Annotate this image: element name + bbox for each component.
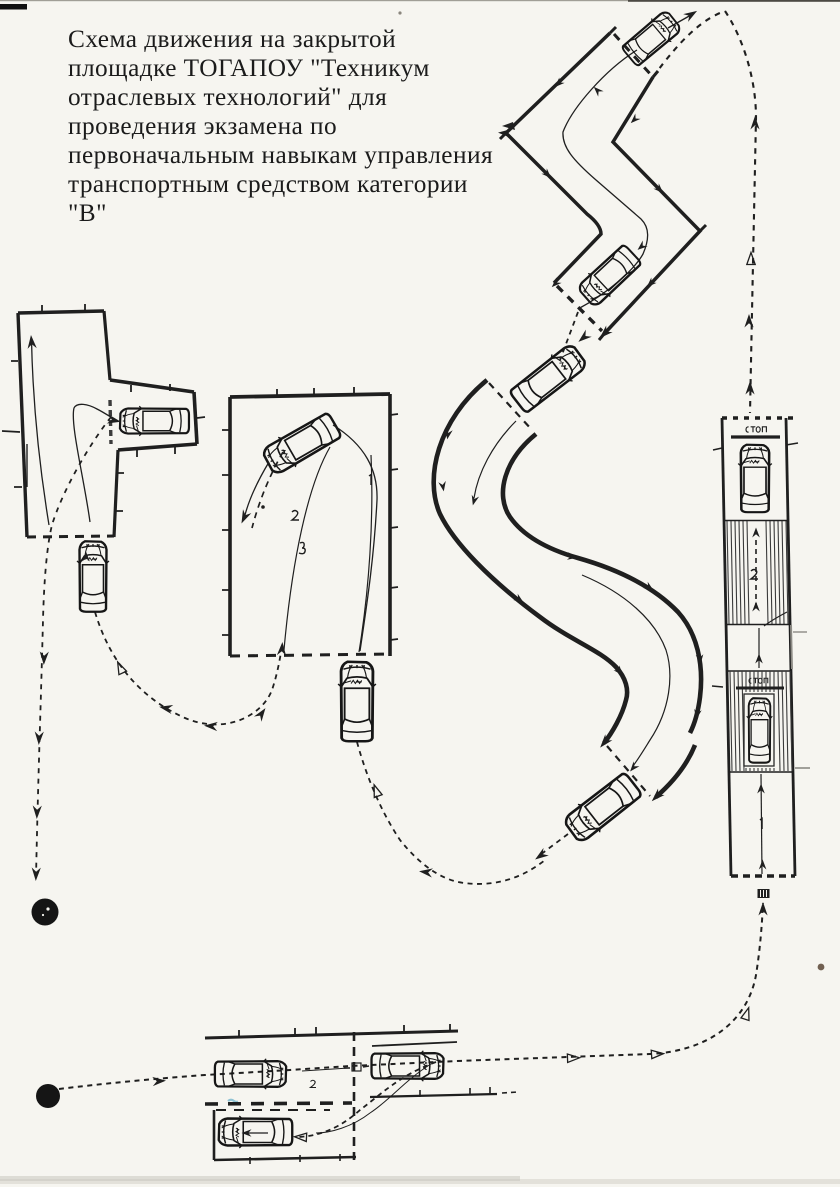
svg-text:Схема движения на закрытой: Схема движения на закрытой bbox=[68, 25, 396, 53]
svg-text:отраслевых технологий" для: отраслевых технологий" для bbox=[68, 83, 387, 111]
svg-text:"В": "В" bbox=[68, 199, 107, 227]
svg-text:площадке ТОГАПОУ "Техникум: площадке ТОГАПОУ "Техникум bbox=[68, 54, 430, 82]
svg-text:проведения экзамена по: проведения экзамена по bbox=[68, 112, 337, 140]
svg-text:первоначальным навыкам управле: первоначальным навыкам управления bbox=[68, 141, 493, 169]
svg-text:транспортным средством категор: транспортным средством категории bbox=[68, 170, 468, 198]
